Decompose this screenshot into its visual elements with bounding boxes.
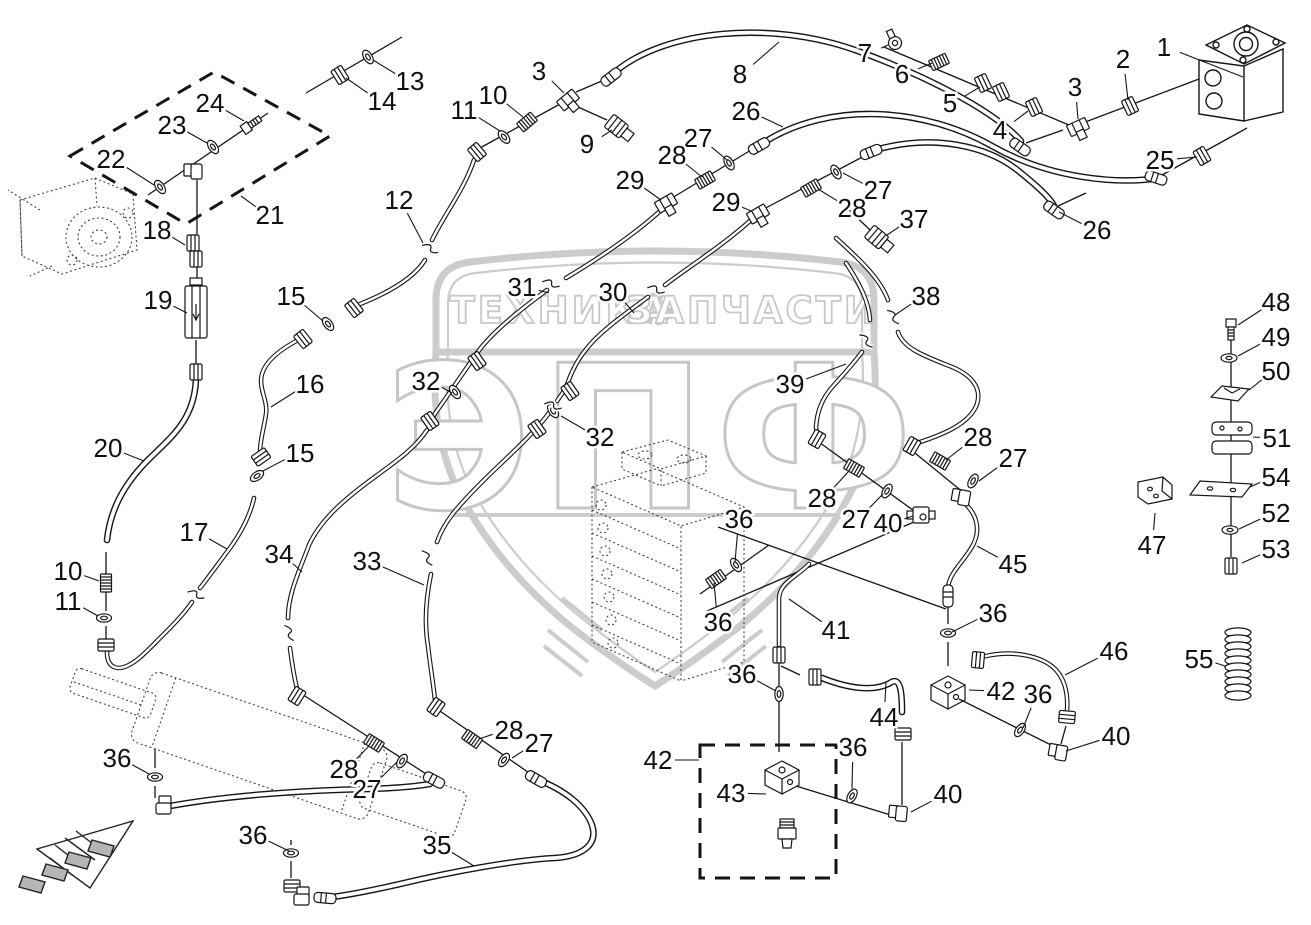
fitting-valve43 [778,819,796,848]
leader-line [979,466,999,481]
callout-number: 32 [412,366,441,396]
callout-38: 38 [895,281,940,315]
callout-number: 36 [728,659,757,689]
callout-19: 19 [144,285,187,315]
callout-number: 3 [1068,72,1082,102]
leader-line [479,734,493,739]
fitting-crimp [524,769,548,789]
leader-line [1125,74,1128,100]
callout-28: 28 [479,715,523,745]
leader-line [1238,344,1261,356]
callout-11: 11 [55,586,99,616]
callout-number: 20 [94,433,123,463]
fitting-nut [190,364,202,380]
callout-10: 10 [54,556,99,586]
callout-number: 9 [580,129,594,159]
leader-line [742,207,751,211]
leader-line [762,117,783,127]
tube-45-inner [948,500,977,588]
callout-number: 23 [158,110,187,140]
fitting-ring [97,614,112,622]
callout-3: 3 [532,56,564,93]
callout-12: 12 [385,185,423,243]
callout-number: 14 [368,86,397,116]
callout-number: 44 [870,702,899,732]
leader-line [1065,658,1099,675]
callout-number: 40 [934,779,963,809]
fitting-block [765,761,799,794]
callout-43: 43 [717,778,766,808]
fitting-nut [1121,96,1139,116]
callout-36: 36 [239,820,289,851]
leader-line [852,762,853,789]
callout-number: 25 [1146,145,1175,175]
callout-number: 46 [1100,636,1129,666]
callout-15: 15 [277,281,323,321]
leader-line [209,539,227,549]
callout-52: 52 [1239,498,1290,529]
leader-line [1238,310,1261,325]
steering-unit [1199,25,1285,121]
callout-number: 13 [396,66,425,96]
callout-number: 26 [732,96,761,126]
callout-number: 27 [864,175,893,205]
callout-number: 51 [1263,423,1292,453]
callout-number: 22 [97,144,126,174]
callout-number: 2 [1116,44,1130,74]
fitting-ring [1012,721,1027,738]
callout-35: 35 [423,830,474,866]
leader-line [380,762,397,779]
leader-line [712,147,727,160]
leader-line [383,567,424,585]
callout-number: 31 [508,272,537,302]
leader-line [479,118,500,131]
fitting-nut [1225,558,1237,574]
callout-number: 28 [808,483,837,513]
leader-line [126,167,154,185]
callout-number: 39 [776,369,805,399]
fitting-nut [190,251,202,267]
leader-line [452,852,474,866]
fitting-stud [705,569,726,588]
leader-line [1215,663,1225,666]
fitting-clamp [1211,386,1249,401]
leader-line [952,619,978,632]
callout-number: 27 [842,504,871,534]
callout-number: 28 [838,193,867,223]
callout-number: 15 [277,281,306,311]
callout-28: 28 [818,189,866,223]
fitting-ring [284,849,299,857]
gear-pump [8,178,137,276]
leader-line [977,546,998,557]
callout-number: 45 [999,549,1028,579]
fitting-ring [941,629,956,637]
callout-number: 42 [644,745,673,775]
fitting-nut [293,329,312,349]
leader-line [757,681,776,691]
callout-number: 17 [180,517,209,547]
fitting-crimp [943,585,953,607]
callout-number: 19 [144,285,173,315]
fitting-nut [809,669,821,685]
callout-number: 27 [353,774,382,804]
fitting-nut [971,652,984,669]
callout-number: 7 [858,38,872,68]
fitting-nut [98,639,114,651]
leader-line [1077,102,1078,119]
callout-42: 42 [644,745,699,775]
leader-line [512,750,524,758]
hose-8 [615,33,1021,141]
fitting-ring [829,163,844,180]
callout-36: 36 [952,598,1007,632]
callout-number: 36 [239,820,268,850]
fitting-stud [101,574,112,592]
callout-number: 28 [495,715,524,745]
callout-36: 36 [728,659,776,691]
leader-line [84,576,99,581]
callout-number: 36 [704,607,733,637]
fitting-washer [1221,354,1237,362]
callout-55: 55 [1185,644,1225,674]
callout-number: 6 [895,59,909,89]
fitting-crimp [859,143,883,161]
leader-line [911,801,933,812]
callout-24: 24 [196,88,244,121]
leader-line [887,227,899,235]
fitting-ring [320,316,336,333]
fitting-valve [185,278,207,338]
fitting-tee [556,89,584,116]
fitting-nut [331,65,350,85]
fitting-nut [251,447,271,466]
fitting-nut [974,73,992,93]
fitting-elbow [1048,743,1068,761]
callout-number: 36 [1024,679,1053,709]
callout-number: 48 [1262,287,1291,317]
callout-29: 29 [712,187,751,217]
callout-number: 5 [943,88,957,118]
callout-number: 41 [822,615,851,645]
callout-number: 16 [296,369,325,399]
fitting-ring [966,472,981,489]
fitting-ring [775,687,783,702]
callout-number: 38 [912,281,941,311]
diagram-canvas: ТЕХНИКАЗАПЧАСТИЭПФ [0,0,1311,925]
callout-number: 30 [599,277,628,307]
callout-21: 21 [241,196,284,230]
fitting-ring [360,48,375,65]
callout-27: 27 [684,123,727,160]
fitting-clamp2 [1212,422,1252,454]
callout-45: 45 [977,546,1027,579]
fitting-brk [284,625,293,642]
callout-number: 18 [143,215,172,245]
callout-number: 34 [265,539,294,569]
callout-number: 36 [839,732,868,762]
leader-line [83,608,98,616]
callout-37: 37 [887,204,928,235]
callout-number: 35 [423,830,452,860]
fitting-coil [1225,628,1251,700]
callout-10: 10 [479,80,523,117]
fitting-crimp [314,892,337,904]
fitting-nut [467,142,486,162]
leader-line [965,87,980,96]
fitting-nut [1025,97,1043,117]
fitting-nut [773,647,785,663]
callout-number: 29 [712,187,741,217]
callout-46: 46 [1065,636,1128,675]
fitting-brk [422,240,438,257]
leader-line [269,841,289,851]
leader-line [172,237,185,245]
callout-number: 33 [353,546,382,576]
callout-26: 26 [732,96,783,127]
leader-line [373,60,395,74]
callout-number: 37 [900,204,929,234]
fitting-nut [288,686,307,706]
callout-number: 50 [1262,356,1291,386]
fitting-washer [1222,526,1238,534]
callout-1: 1 [1157,32,1243,77]
callout-number: 10 [479,80,508,110]
dashed-box-42 [700,745,836,878]
fitting-stud [929,53,950,71]
callout-number: 15 [286,438,315,468]
leader-line [644,188,661,200]
callout-number: 47 [1138,530,1167,560]
fitting-block [931,676,965,709]
callout-number: 29 [616,165,645,195]
fitting-ring [152,178,167,195]
callout-40: 40 [1066,721,1130,751]
leader-line [895,304,912,315]
fitting-ring [496,751,511,768]
fitting-elbow [888,805,907,822]
callout-number: 40 [874,508,903,538]
callout-36: 36 [839,732,868,789]
fitting-nut [1059,710,1076,723]
leader-line [124,453,144,461]
callout-9: 9 [580,129,612,159]
fitting-plate [1190,481,1252,497]
callout-number: 24 [196,88,225,118]
callout-number: 11 [55,586,82,616]
callout-47: 47 [1138,513,1167,560]
callout-number: 27 [525,728,554,758]
leader-line [271,392,295,407]
callout-number: 27 [684,123,713,153]
callout-8: 8 [733,42,779,89]
hose-8-inner [615,33,1021,141]
callout-number: 36 [725,504,754,534]
callout-26: 26 [1059,212,1111,245]
callout-number: 27 [999,443,1028,473]
callout-53: 53 [1242,534,1290,564]
leader-line [843,173,863,183]
leader-line [225,110,244,121]
leader-line [1239,519,1260,529]
fitting-bolt [1226,319,1236,340]
fitting-nut [426,697,445,717]
callout-29: 29 [616,165,661,200]
callout-number: 21 [256,200,285,230]
leader-line [1242,555,1260,563]
callout-15: 15 [263,438,314,471]
callout-34: 34 [265,539,302,572]
leader-line [789,599,822,622]
fitting-elbow [951,488,971,506]
direction-arrow [19,821,133,893]
callout-16: 16 [271,369,324,407]
fitting-ring [205,138,220,155]
leader-line [304,305,323,321]
callout-number: 36 [103,743,132,773]
parts-diagram: ТЕХНИКАЗАПЧАСТИЭПФ [0,0,1311,925]
callout-number: 54 [1262,462,1291,492]
callout-17: 17 [180,517,227,549]
leader-line [241,196,256,207]
leader-line [748,793,766,794]
fitting-elbow [156,796,171,814]
leader-line [407,213,423,243]
fitting-ring [148,773,163,781]
callout-number: 3 [532,56,546,86]
fitting-crimp [747,136,771,156]
leader-line [187,132,207,143]
fitting-sensor [604,114,636,144]
fitting-bolt [240,114,263,134]
callout-41: 41 [789,599,850,645]
leader-line [946,446,964,460]
callout-40: 40 [911,779,962,812]
callout-number: 52 [1262,498,1291,528]
callout-number: 11 [451,95,478,125]
leader-line [346,78,368,93]
callout-36: 36 [704,583,733,637]
fitting-crimp [599,66,622,87]
leader-line [1154,513,1155,530]
callout-number: 10 [54,556,83,586]
leader-line [1249,380,1262,390]
fitting-bracket [1138,477,1172,504]
tube-41-inner [779,564,809,645]
leader-line [818,189,837,201]
fitting-tee [746,204,773,230]
leader-line [1023,708,1031,728]
leader-line [753,42,779,64]
callout-14: 14 [346,78,396,116]
callout-number: 32 [586,422,615,452]
callout-51: 51 [1253,423,1291,453]
leader-line [969,690,984,691]
fitting-stud [800,179,821,198]
callout-number: 8 [733,59,747,89]
leader-line [602,130,612,137]
callout-3: 3 [1068,72,1082,119]
callout-22: 22 [97,144,154,185]
callout-number: 28 [658,140,687,170]
callout-number: 36 [979,598,1008,628]
callout-number: 4 [993,115,1007,145]
callout-49: 49 [1238,322,1290,356]
callout-2: 2 [1116,44,1130,100]
callout-36: 36 [103,743,149,774]
callout-36: 36 [1023,679,1052,728]
leader-line [1014,111,1028,122]
callout-number: 49 [1262,322,1291,352]
callout-number: 26 [1083,215,1112,245]
leader-line [686,164,702,177]
fitting-nut [187,235,199,251]
callout-number: 28 [964,422,993,452]
leader-line [507,104,523,117]
leader-line [1066,740,1100,751]
callout-48: 48 [1238,287,1290,325]
callout-number: 42 [987,676,1016,706]
callout-42: 42 [969,676,1015,706]
leader-line [132,765,149,774]
callout-number: 55 [1185,644,1214,674]
callout-number: 43 [717,778,746,808]
leader-line [552,81,564,93]
callout-number: 1 [1157,32,1171,62]
callout-20: 20 [94,433,144,463]
fitting-ring [728,556,743,573]
fitting-elbow [184,164,202,179]
fitting-nut [344,298,363,318]
callout-27: 27 [353,762,397,804]
callout-number: 12 [385,185,414,215]
callout-number: 40 [1102,721,1131,751]
callout-number: 53 [1262,534,1291,564]
callout-50: 50 [1249,356,1290,390]
callout-54: 54 [1250,462,1290,492]
